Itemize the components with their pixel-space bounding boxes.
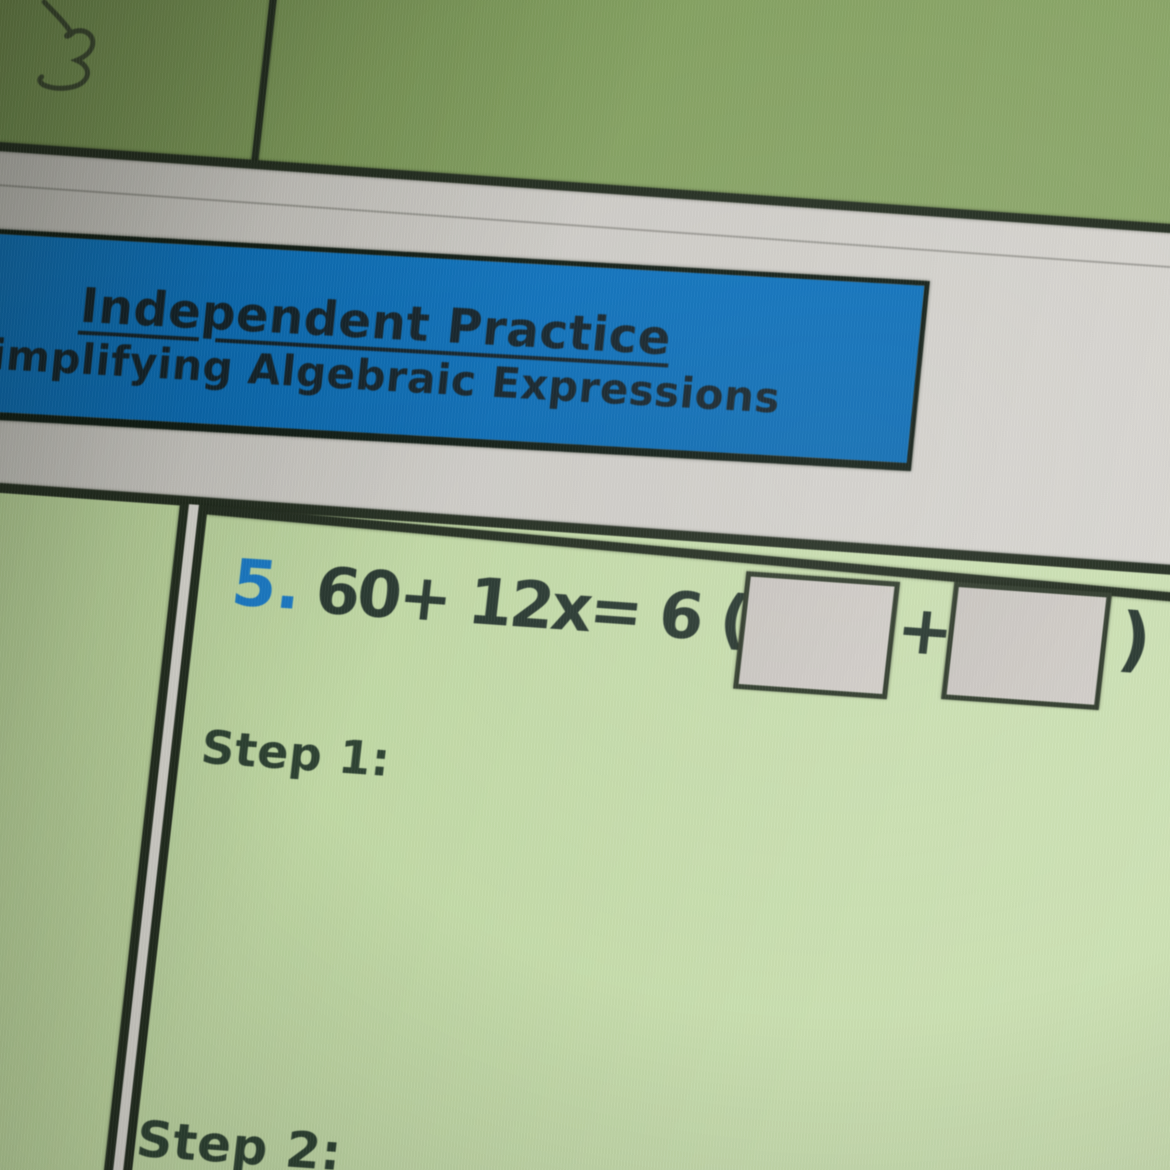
step-2-label: Step 2: — [134, 1114, 344, 1170]
answer-blank-1[interactable] — [733, 571, 900, 699]
handwritten-3-mark — [28, 0, 166, 125]
worksheet-photo: Independent Practice Simplifying Algebra… — [0, 0, 1170, 1170]
step-1-label: Step 1: — [199, 724, 393, 783]
problem-number: 5. — [229, 552, 305, 620]
answer-blank-2[interactable] — [941, 582, 1112, 710]
